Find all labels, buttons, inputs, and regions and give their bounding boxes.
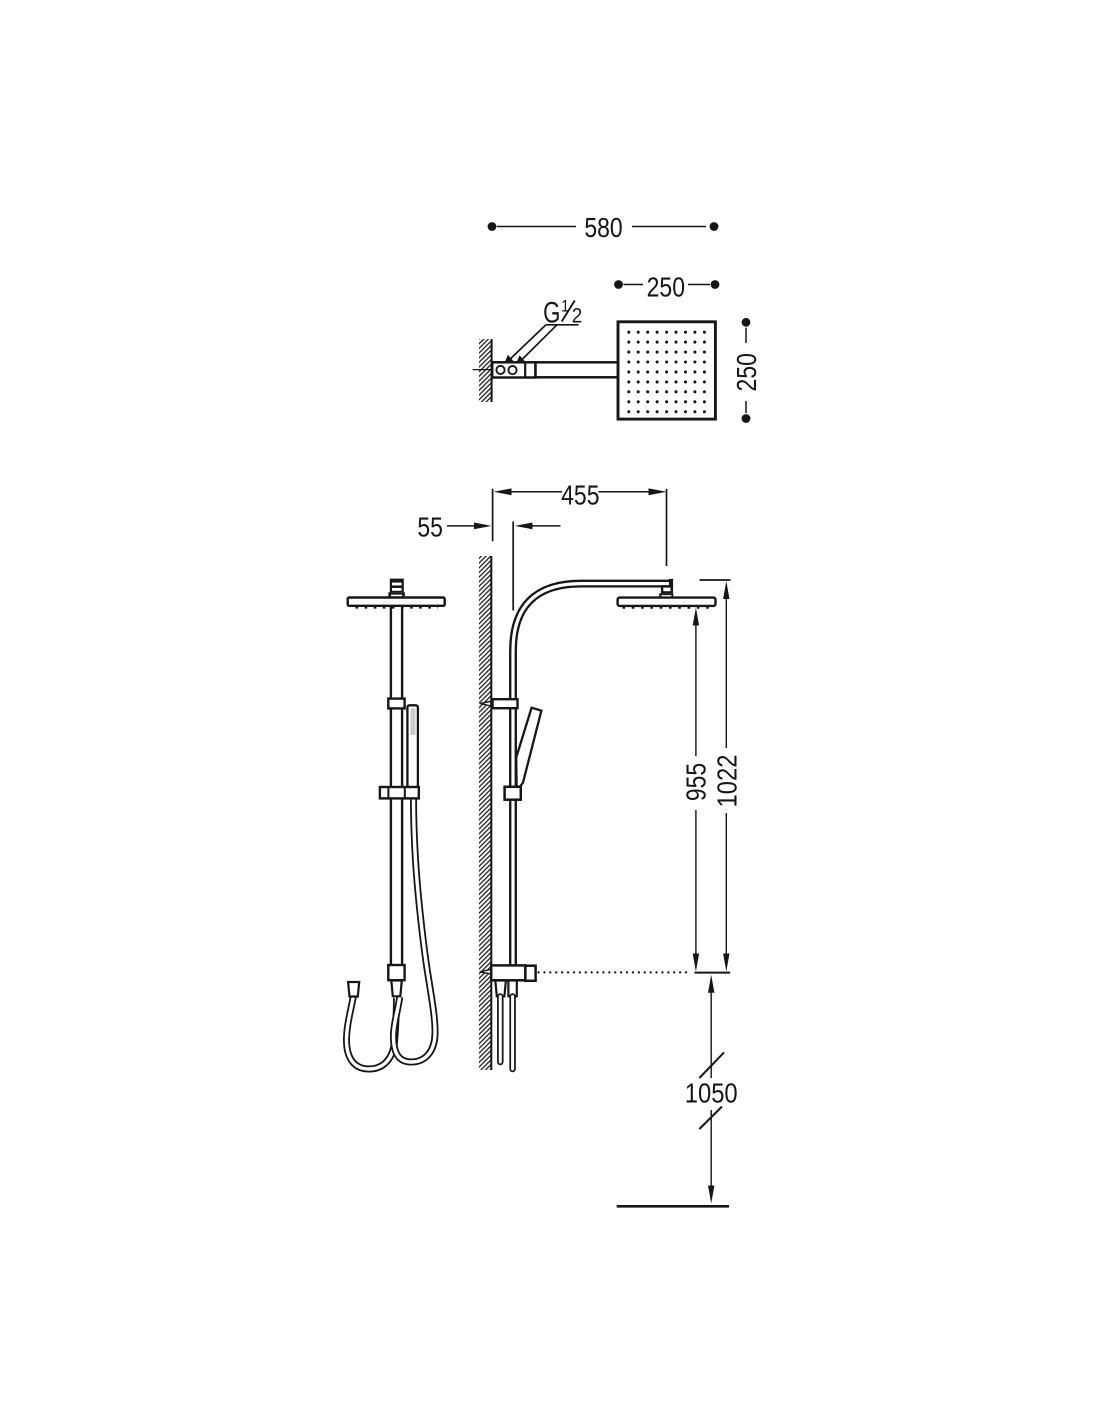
svg-text:580: 580 [584, 213, 622, 244]
svg-text:1050: 1050 [685, 1077, 738, 1109]
svg-text:250: 250 [647, 272, 685, 303]
svg-text:250: 250 [732, 353, 763, 391]
svg-text:55: 55 [417, 512, 443, 543]
svg-text:1022: 1022 [711, 755, 743, 808]
svg-text:455: 455 [561, 481, 599, 512]
svg-text:955: 955 [681, 763, 712, 801]
